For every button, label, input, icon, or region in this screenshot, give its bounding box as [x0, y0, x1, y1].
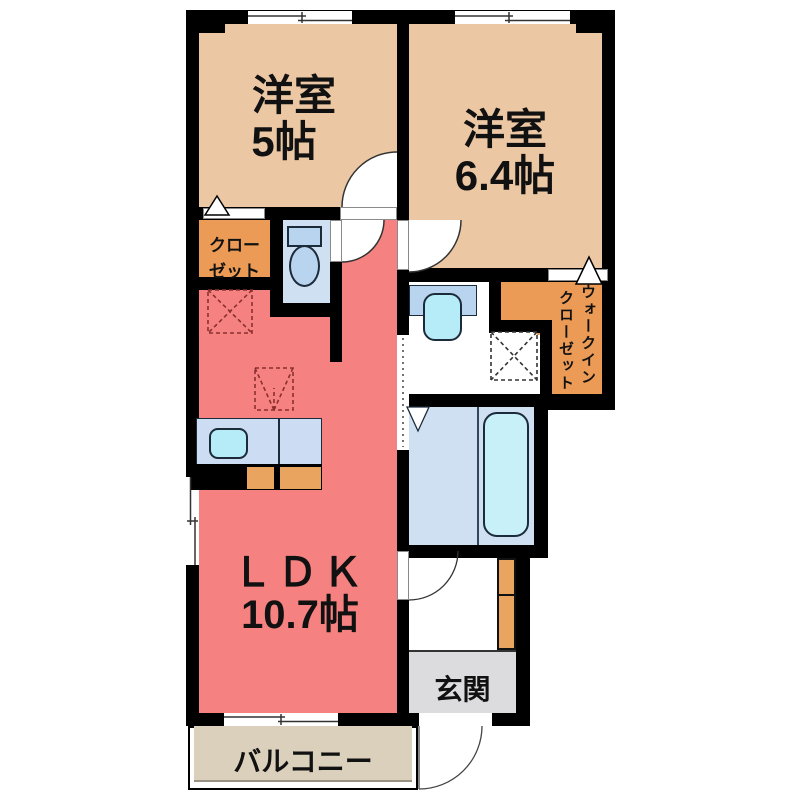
window-top-right	[455, 11, 570, 24]
closet-label-line1: クロー	[199, 231, 270, 256]
window-top-left	[248, 11, 352, 24]
kitchen-cabinet-cell	[247, 467, 274, 489]
floorplan-canvas: 洋室 5帖 洋室 6.4帖 ＬＤＫ 10.7帖 クロー ゼット ウォークイン ク…	[0, 0, 800, 800]
vanity-basin-icon	[423, 293, 462, 341]
wic-label-col2: クローゼット	[554, 290, 576, 392]
toilet-tank-icon	[287, 226, 322, 247]
front-door-opening	[419, 713, 492, 726]
bathtub-icon	[483, 412, 529, 537]
wall	[516, 545, 530, 726]
wall	[602, 10, 615, 410]
closet-folding-door	[203, 208, 265, 219]
door-leaf-bedroom5	[340, 207, 397, 220]
kitchen-cabinet-cell	[280, 467, 321, 489]
window-left	[186, 477, 199, 565]
sliding-door-washroom	[397, 335, 409, 450]
wall	[540, 320, 552, 394]
bath-panel-divider	[477, 407, 479, 545]
wall	[199, 24, 225, 33]
toilet-bowl-icon	[289, 245, 320, 287]
wall	[409, 394, 540, 407]
ldk-floor	[199, 317, 397, 713]
entrance-step-line	[409, 650, 516, 652]
ldk-corridor-floor	[342, 220, 397, 317]
door-leaf-toilet	[330, 220, 342, 262]
entrance-label: 玄関	[409, 668, 516, 708]
bedroom-64-size: 6.4帖	[405, 142, 605, 203]
wall	[534, 394, 548, 558]
wic-folding-door	[548, 269, 608, 281]
kitchen-counter-divider	[278, 418, 280, 466]
wall	[270, 207, 283, 317]
shoe-cabinet	[497, 558, 516, 650]
front-door-arc	[419, 726, 482, 789]
window-balcony	[224, 713, 338, 726]
wic-label-col1: ウォークイン	[576, 284, 598, 392]
balcony-label: バルコニー	[194, 740, 412, 780]
kitchen-sink-icon	[209, 428, 248, 459]
door-leaf-bedroom64	[397, 220, 409, 270]
wic-label: ウォークイン クローゼット	[552, 284, 598, 392]
ldk-floor-strip	[199, 290, 270, 317]
wall	[489, 268, 501, 323]
bedroom-5-size: 5帖	[184, 108, 384, 169]
ldk-size: 10.7帖	[200, 582, 400, 640]
hallway-floor	[409, 558, 497, 650]
shoe-cabinet-divider	[497, 594, 516, 596]
wall	[576, 24, 602, 33]
closet-label-line2: ゼット	[199, 257, 270, 282]
